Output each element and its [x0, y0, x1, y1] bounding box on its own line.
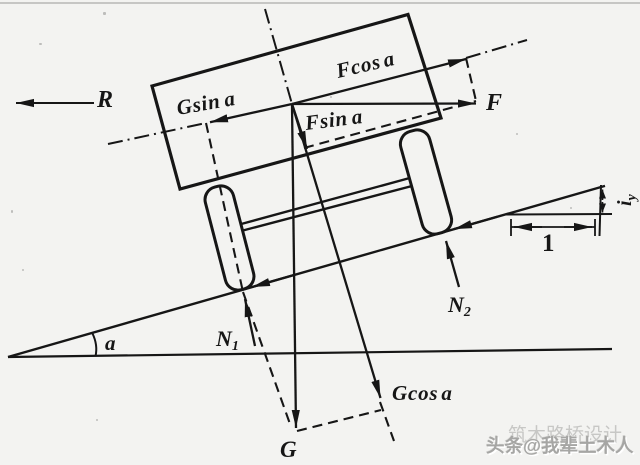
svg-text:1: 1	[542, 230, 555, 257]
svg-text:R: R	[96, 87, 113, 113]
svg-text:G: G	[280, 437, 297, 462]
svg-text:Gcosa: Gcosa	[392, 381, 453, 405]
svg-text:a: a	[105, 331, 116, 355]
svg-text:F: F	[485, 90, 502, 116]
svg-text:头条@我辈土木人: 头条@我辈土木人	[486, 435, 634, 456]
